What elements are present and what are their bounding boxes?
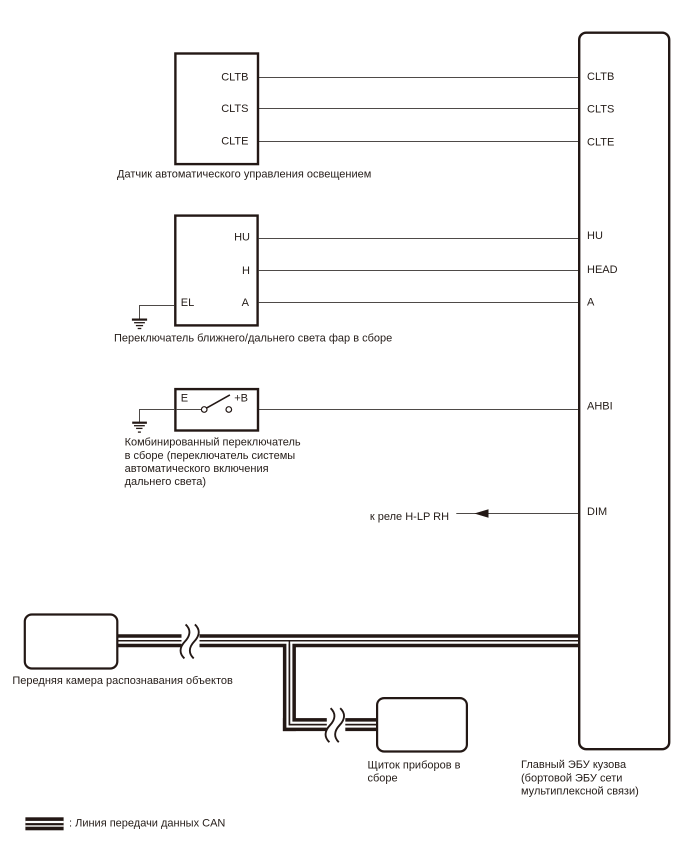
svg-text:Главный ЭБУ кузова: Главный ЭБУ кузова (521, 759, 627, 771)
svg-text:CLTS: CLTS (587, 103, 614, 115)
svg-text:DIM: DIM (587, 506, 607, 518)
svg-text:мультиплексной связи): мультиплексной связи) (521, 786, 639, 798)
svg-text:Комбинированный переключатель: Комбинированный переключатель (125, 437, 301, 449)
svg-text:в сборе (переключатель системы: в сборе (переключатель системы (125, 450, 296, 462)
svg-text:HU: HU (234, 232, 250, 244)
svg-text:HEAD: HEAD (587, 264, 618, 276)
svg-text:CLTS: CLTS (221, 103, 248, 115)
svg-text:HU: HU (587, 230, 603, 242)
svg-text:автоматического включения: автоматического включения (125, 463, 269, 475)
svg-text:CLTE: CLTE (587, 137, 614, 149)
svg-text:A: A (242, 297, 250, 309)
svg-text:E: E (181, 392, 188, 404)
svg-text:A: A (587, 297, 595, 309)
svg-text:дальнего света): дальнего света) (125, 476, 207, 488)
svg-text:+B: +B (234, 392, 248, 404)
svg-text:Щиток приборов в: Щиток приборов в (368, 759, 461, 771)
svg-text:CLTB: CLTB (587, 71, 614, 83)
svg-text:CLTE: CLTE (221, 136, 248, 148)
svg-text:Датчик автоматического управле: Датчик автоматического управления освеще… (117, 168, 371, 180)
svg-text:H: H (242, 265, 250, 277)
svg-text:сборе: сборе (368, 772, 398, 784)
svg-text:Переключатель ближнего/дальнег: Переключатель ближнего/дальнего света фа… (114, 333, 392, 345)
svg-text:AHBI: AHBI (587, 401, 613, 413)
svg-text:CLTB: CLTB (221, 72, 248, 84)
svg-text:Передняя камера распознавания: Передняя камера распознавания объектов (12, 675, 233, 687)
svg-text:(бортовой ЭБУ сети: (бортовой ЭБУ сети (521, 772, 622, 784)
svg-text:к реле H-LP RH: к реле H-LP RH (370, 511, 449, 523)
svg-text:EL: EL (181, 297, 194, 309)
svg-text:: Линия передачи данных CAN: : Линия передачи данных CAN (69, 818, 225, 830)
